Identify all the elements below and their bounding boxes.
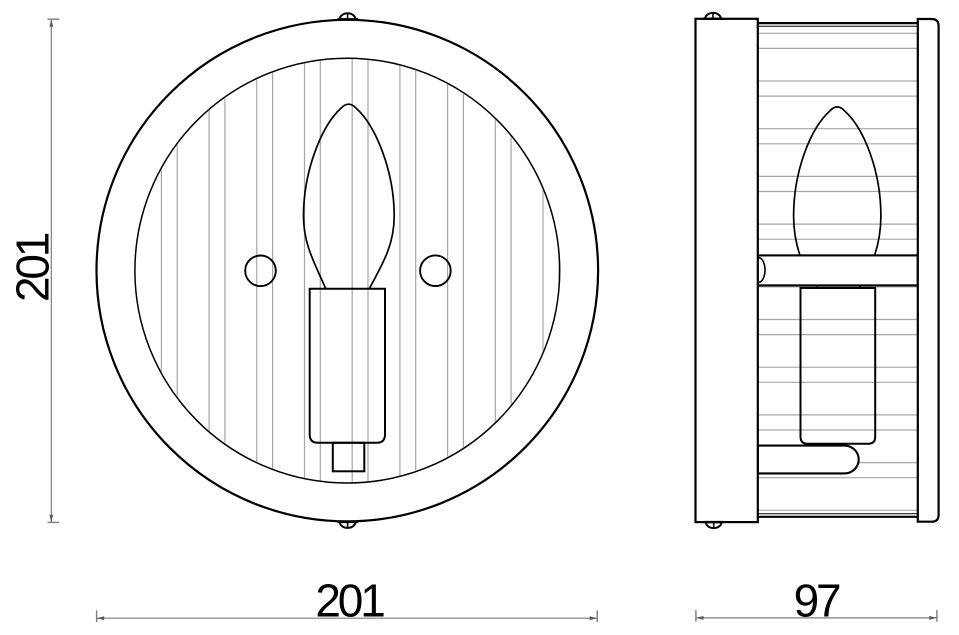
svg-text:201: 201 bbox=[315, 574, 384, 626]
svg-text:201: 201 bbox=[7, 233, 59, 302]
svg-text:97: 97 bbox=[794, 574, 840, 626]
